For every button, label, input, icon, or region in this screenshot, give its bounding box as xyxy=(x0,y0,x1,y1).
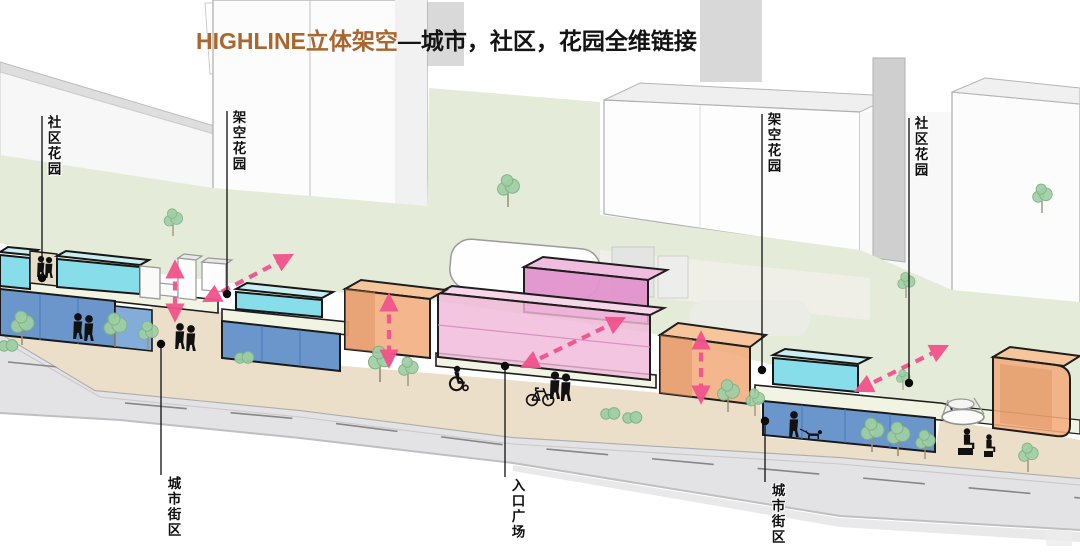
highline-diagram: HIGHLINE立体架空—城市，社区，花园全维链接 社区花园 架空花园 架空花园… xyxy=(0,0,1080,558)
page-title: HIGHLINE立体架空—城市，社区，花园全维链接 xyxy=(196,22,697,56)
label-elevated-garden-right: 架空花园 xyxy=(766,112,780,174)
title-highlight: HIGHLINE立体架空 xyxy=(196,28,398,54)
grey-slab-center xyxy=(700,0,762,82)
watermark xyxy=(1046,530,1072,546)
label-city-block-right: 城市街区 xyxy=(770,483,784,545)
title-rest: —城市，社区，花园全维链接 xyxy=(398,28,697,54)
glass-box-a1 xyxy=(0,255,30,289)
label-community-garden-right: 社区花园 xyxy=(913,116,927,178)
label-elevated-garden-left: 架空花园 xyxy=(231,110,245,172)
label-entrance-plaza: 入口广场 xyxy=(510,478,524,540)
label-community-garden-left: 社区花园 xyxy=(46,115,60,177)
grey-slab-right xyxy=(873,58,905,262)
axonometric-scene xyxy=(0,0,1080,558)
label-city-block-left: 城市街区 xyxy=(166,476,180,538)
